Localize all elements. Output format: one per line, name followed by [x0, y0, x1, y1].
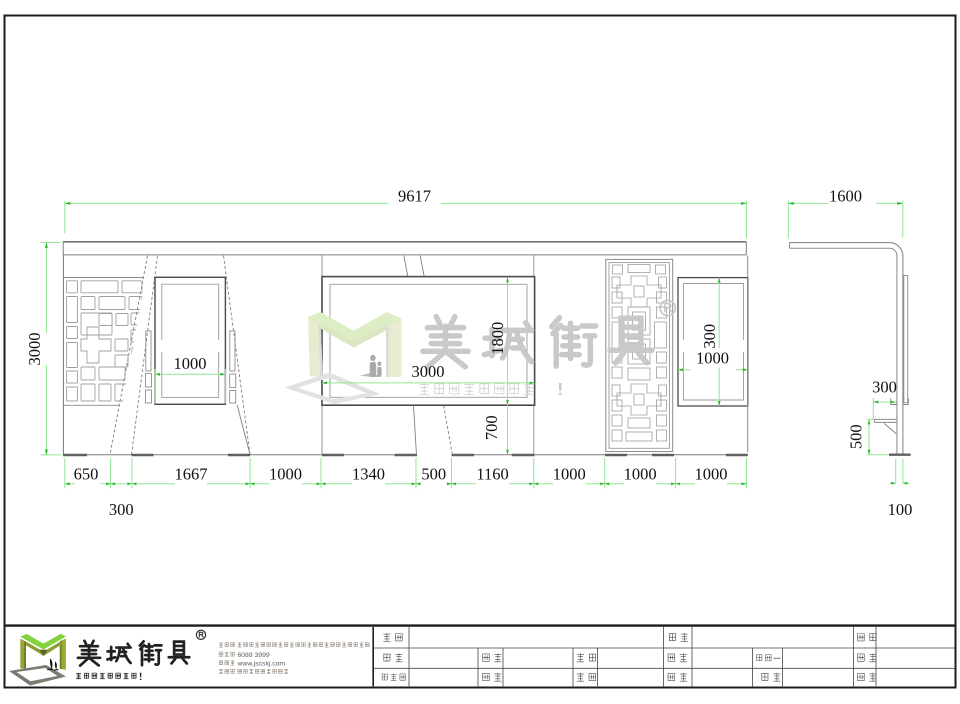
svg-text:500: 500: [421, 465, 446, 484]
svg-text:700: 700: [482, 415, 501, 440]
svg-text:500: 500: [847, 424, 866, 449]
svg-text:3000: 3000: [412, 362, 445, 381]
svg-text:1000: 1000: [696, 348, 729, 367]
svg-text:6088 3999: 6088 3999: [238, 652, 270, 659]
svg-text:1160: 1160: [476, 465, 508, 484]
svg-text:1600: 1600: [829, 186, 862, 205]
svg-text:300: 300: [109, 500, 134, 519]
svg-text:9617: 9617: [398, 186, 431, 205]
svg-text:1800: 1800: [488, 322, 507, 355]
svg-text:300: 300: [700, 324, 719, 349]
svg-text:100: 100: [888, 500, 913, 519]
svg-text:1000: 1000: [695, 465, 728, 484]
svg-text:www.jscskj.com: www.jscskj.com: [237, 661, 286, 668]
svg-text:1000: 1000: [553, 465, 586, 484]
svg-text:1000: 1000: [269, 465, 302, 484]
svg-text:1667: 1667: [175, 465, 208, 484]
svg-text:300: 300: [872, 377, 897, 396]
svg-text:1000: 1000: [624, 465, 657, 484]
svg-text:1340: 1340: [352, 465, 385, 484]
svg-text:1000: 1000: [174, 354, 207, 373]
svg-text:3000: 3000: [25, 333, 44, 366]
svg-text:650: 650: [74, 465, 99, 484]
